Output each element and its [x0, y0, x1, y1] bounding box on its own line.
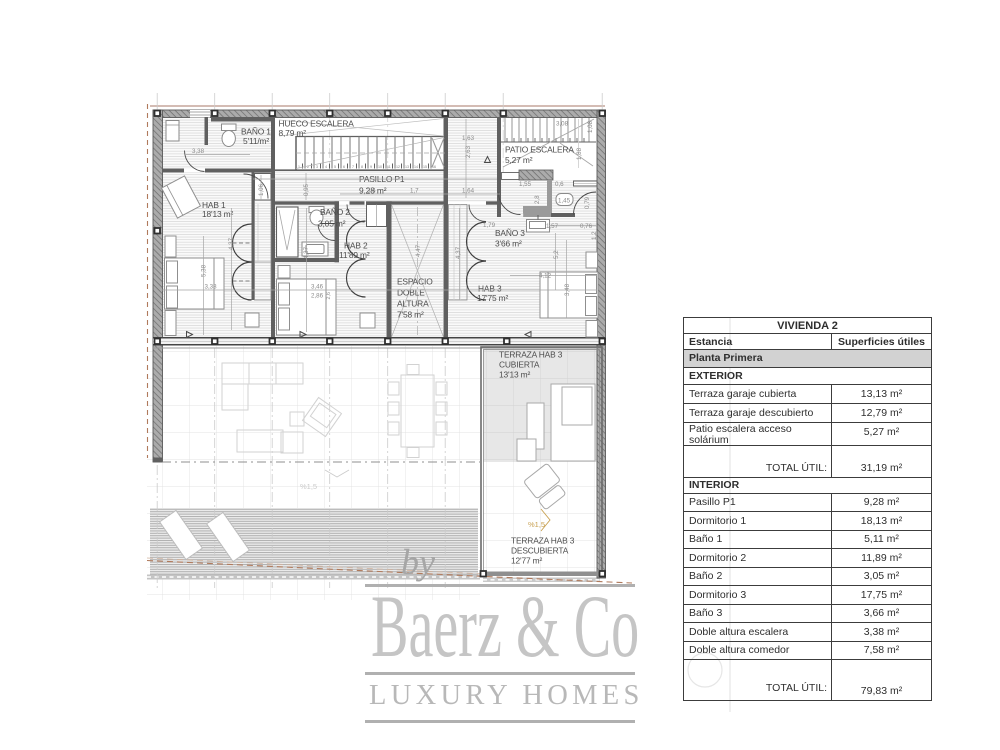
- svg-text:16: 16: [432, 165, 436, 169]
- svg-text:8: 8: [361, 165, 363, 169]
- svg-text:6: 6: [343, 165, 345, 169]
- svg-text:0,6: 0,6: [555, 181, 564, 188]
- svg-text:3,46: 3,46: [311, 284, 324, 291]
- svg-text:5,2: 5,2: [553, 250, 560, 259]
- svg-text:4,47: 4,47: [415, 244, 422, 257]
- svg-text:12'77 m²: 12'77 m²: [511, 556, 542, 566]
- svg-text:0,76: 0,76: [580, 223, 593, 230]
- svg-text:3,38: 3,38: [205, 284, 218, 291]
- svg-text:18'13 m²: 18'13 m²: [202, 209, 233, 219]
- svg-text:%1,5: %1,5: [300, 482, 317, 491]
- svg-text:ESPACIO: ESPACIO: [397, 277, 433, 287]
- svg-text:15: 15: [423, 165, 427, 169]
- svg-text:ALTURA: ALTURA: [397, 299, 429, 309]
- svg-text:DESCUBIERTA: DESCUBIERTA: [511, 546, 569, 556]
- svg-text:11'89 m²: 11'89 m²: [339, 250, 370, 260]
- svg-text:2,63: 2,63: [465, 145, 472, 158]
- svg-text:1,63: 1,63: [462, 135, 475, 142]
- svg-text:13'13 m²: 13'13 m²: [499, 370, 530, 380]
- svg-text:4,37: 4,37: [228, 237, 235, 250]
- svg-text:1,06: 1,06: [258, 183, 265, 196]
- svg-text:HAB 2: HAB 2: [344, 241, 368, 251]
- svg-text:BAÑO 3: BAÑO 3: [495, 228, 525, 238]
- svg-text:3,08: 3,08: [556, 121, 569, 128]
- svg-text:TERRAZA HAB 3: TERRAZA HAB 3: [499, 350, 563, 360]
- svg-text:1,7: 1,7: [410, 188, 419, 195]
- svg-text:14: 14: [414, 165, 418, 169]
- svg-text:0,79: 0,79: [584, 196, 591, 209]
- svg-text:1,79: 1,79: [483, 222, 496, 229]
- svg-text:0,95: 0,95: [303, 183, 310, 196]
- svg-text:DOBLE: DOBLE: [397, 288, 425, 298]
- svg-text:1,08: 1,08: [587, 120, 594, 133]
- svg-text:3,6: 3,6: [367, 188, 376, 195]
- svg-text:13: 13: [405, 165, 409, 169]
- svg-text:17'75 m²: 17'75 m²: [477, 293, 508, 303]
- svg-text:5'11/m²: 5'11/m²: [243, 136, 269, 146]
- svg-text:4,37: 4,37: [455, 246, 462, 259]
- svg-text:11: 11: [387, 165, 391, 169]
- svg-text:10: 10: [378, 165, 382, 169]
- svg-text:BAÑO 2: BAÑO 2: [320, 207, 350, 217]
- svg-text:HUECO ESCALERA: HUECO ESCALERA: [279, 119, 355, 129]
- svg-text:HAB 3: HAB 3: [478, 284, 502, 294]
- svg-text:3,48: 3,48: [564, 283, 571, 296]
- svg-text:12: 12: [396, 165, 400, 169]
- svg-text:5: 5: [334, 165, 336, 169]
- svg-text:1,55: 1,55: [519, 181, 532, 188]
- svg-text:TERRAZA HAB 3: TERRAZA HAB 3: [511, 536, 575, 546]
- svg-text:7: 7: [352, 165, 354, 169]
- svg-text:3,05 m²: 3,05 m²: [318, 219, 346, 229]
- svg-text:3'66 m²: 3'66 m²: [495, 239, 522, 249]
- svg-text:CUBIERTA: CUBIERTA: [499, 360, 540, 370]
- svg-text:9: 9: [370, 165, 372, 169]
- svg-text:1,45: 1,45: [558, 198, 571, 205]
- svg-text:3,38: 3,38: [192, 148, 205, 155]
- svg-text:%1,5: %1,5: [528, 520, 545, 529]
- svg-text:1,57: 1,57: [546, 223, 559, 230]
- svg-text:1,64: 1,64: [462, 188, 475, 195]
- svg-text:BAÑO 1: BAÑO 1: [241, 127, 271, 137]
- svg-text:3: 3: [316, 165, 318, 169]
- svg-text:4: 4: [325, 165, 327, 169]
- svg-text:5,27 m²: 5,27 m²: [505, 155, 533, 165]
- svg-text:8,79 m²: 8,79 m²: [279, 128, 307, 138]
- svg-text:PATIO ESCALERA: PATIO ESCALERA: [505, 145, 574, 155]
- svg-text:4,12: 4,12: [539, 273, 552, 280]
- svg-text:2,6: 2,6: [326, 292, 332, 300]
- svg-text:2,8: 2,8: [534, 195, 541, 204]
- svg-text:1,88: 1,88: [576, 147, 583, 160]
- svg-text:2,86: 2,86: [311, 293, 324, 300]
- svg-text:1,2: 1,2: [591, 231, 598, 240]
- svg-text:5,38: 5,38: [201, 264, 208, 277]
- svg-text:4,37: 4,37: [303, 246, 310, 259]
- svg-text:1: 1: [298, 165, 300, 169]
- svg-text:7'58 m²: 7'58 m²: [397, 310, 424, 320]
